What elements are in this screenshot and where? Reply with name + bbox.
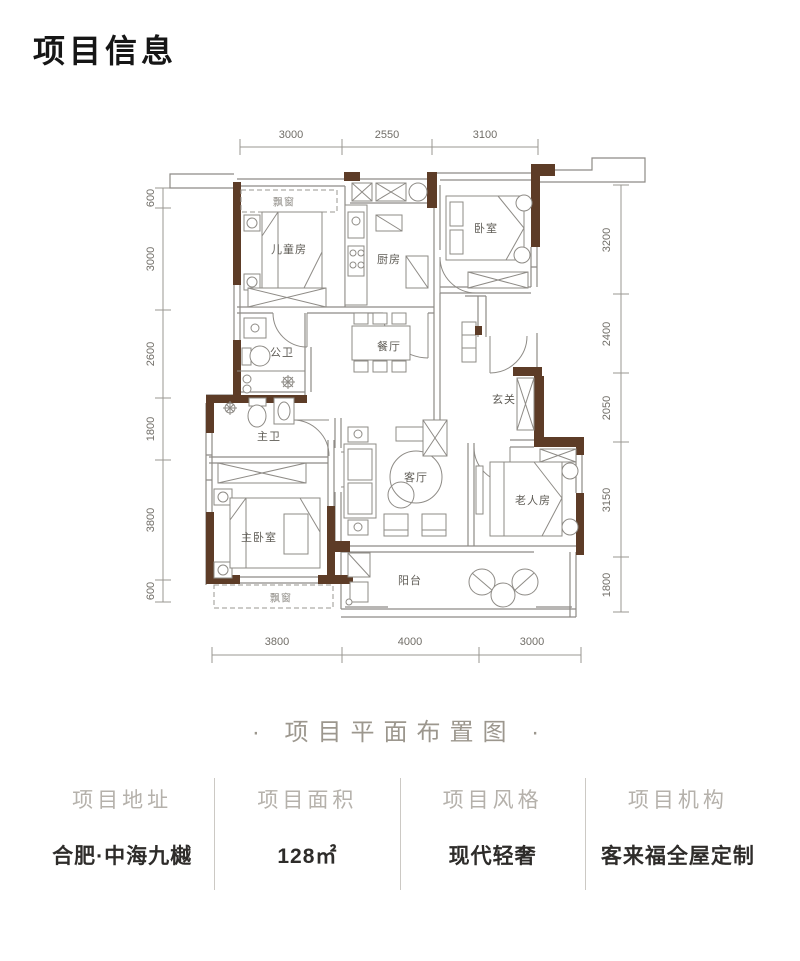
room-label-kids-room: 儿童房 (271, 241, 307, 257)
room-label-bedroom: 卧室 (474, 220, 498, 236)
info-value-style: 现代轻奢 (401, 840, 585, 870)
dim-top-1: 3000 (279, 129, 303, 141)
dim-left-6: 600 (145, 582, 157, 600)
info-col-agency: 项目机构 客来福全屋定制 (586, 778, 770, 890)
info-value-agency: 客来福全屋定制 (586, 840, 770, 870)
dim-right-2: 2400 (601, 322, 613, 346)
dim-left-4: 1800 (145, 417, 157, 441)
dim-right-5: 1800 (601, 573, 613, 597)
balcony-furniture-icon (346, 553, 538, 607)
plan-caption: · 项目平面布置图 · (0, 712, 800, 747)
info-col-style: 项目风格 现代轻奢 (401, 778, 586, 890)
kids-wardrobe-icon (248, 288, 326, 307)
utility-appliances-icon (352, 183, 427, 201)
info-label-style: 项目风格 (401, 784, 585, 814)
room-label-bay-window-2: 飘窗 (270, 590, 292, 605)
info-label-area: 项目面积 (215, 784, 399, 814)
info-col-address: 项目地址 合肥·中海九樾 (30, 778, 215, 890)
sofa-icon (344, 427, 376, 535)
dim-left-1: 600 (145, 189, 157, 207)
dim-left-2: 3000 (145, 247, 157, 271)
dim-bottom-2: 4000 (398, 636, 422, 648)
armchairs-icon (384, 514, 446, 536)
dim-right-3: 2050 (601, 396, 613, 420)
room-label-living-room: 客厅 (404, 469, 428, 485)
room-label-elder-room: 老人房 (515, 492, 551, 508)
room-label-master-bedroom: 主卧室 (241, 529, 277, 545)
info-value-address: 合肥·中海九樾 (30, 840, 214, 870)
dim-top-3: 3100 (473, 129, 497, 141)
room-label-foyer: 玄关 (492, 391, 516, 407)
room-label-dining-room: 餐厅 (377, 338, 401, 354)
master-wardrobe-icon (218, 463, 306, 483)
room-label-master-bath: 主卫 (257, 428, 281, 444)
room-label-bay-window: 飘窗 (273, 194, 295, 209)
dim-left-5: 3800 (145, 508, 157, 532)
room-label-balcony: 阳台 (398, 572, 422, 588)
bedroom-wardrobe-icon (468, 272, 528, 288)
room-label-kitchen: 厨房 (377, 251, 401, 267)
info-value-area: 128㎡ (215, 840, 399, 870)
project-info-sheet: 项目信息 飘窗 儿童房 厨房 卧室 公卫 餐厅 玄关 主卫 客厅 主卧室 老人房… (0, 0, 800, 961)
page-title: 项目信息 (33, 26, 177, 72)
dim-bottom-1: 3800 (265, 636, 289, 648)
dim-left-3: 2600 (145, 342, 157, 366)
room-label-public-bath: 公卫 (270, 344, 294, 360)
dim-top-2: 2550 (375, 129, 399, 141)
info-col-area: 项目面积 128㎡ (215, 778, 400, 890)
dim-right-4: 3150 (601, 488, 613, 512)
info-label-address: 项目地址 (30, 784, 214, 814)
dim-bottom-3: 3000 (520, 636, 544, 648)
project-info-row: 项目地址 合肥·中海九樾 项目面积 128㎡ 项目风格 现代轻奢 项目机构 客来… (30, 778, 770, 890)
info-label-agency: 项目机构 (586, 784, 770, 814)
dim-right-1: 3200 (601, 228, 613, 252)
